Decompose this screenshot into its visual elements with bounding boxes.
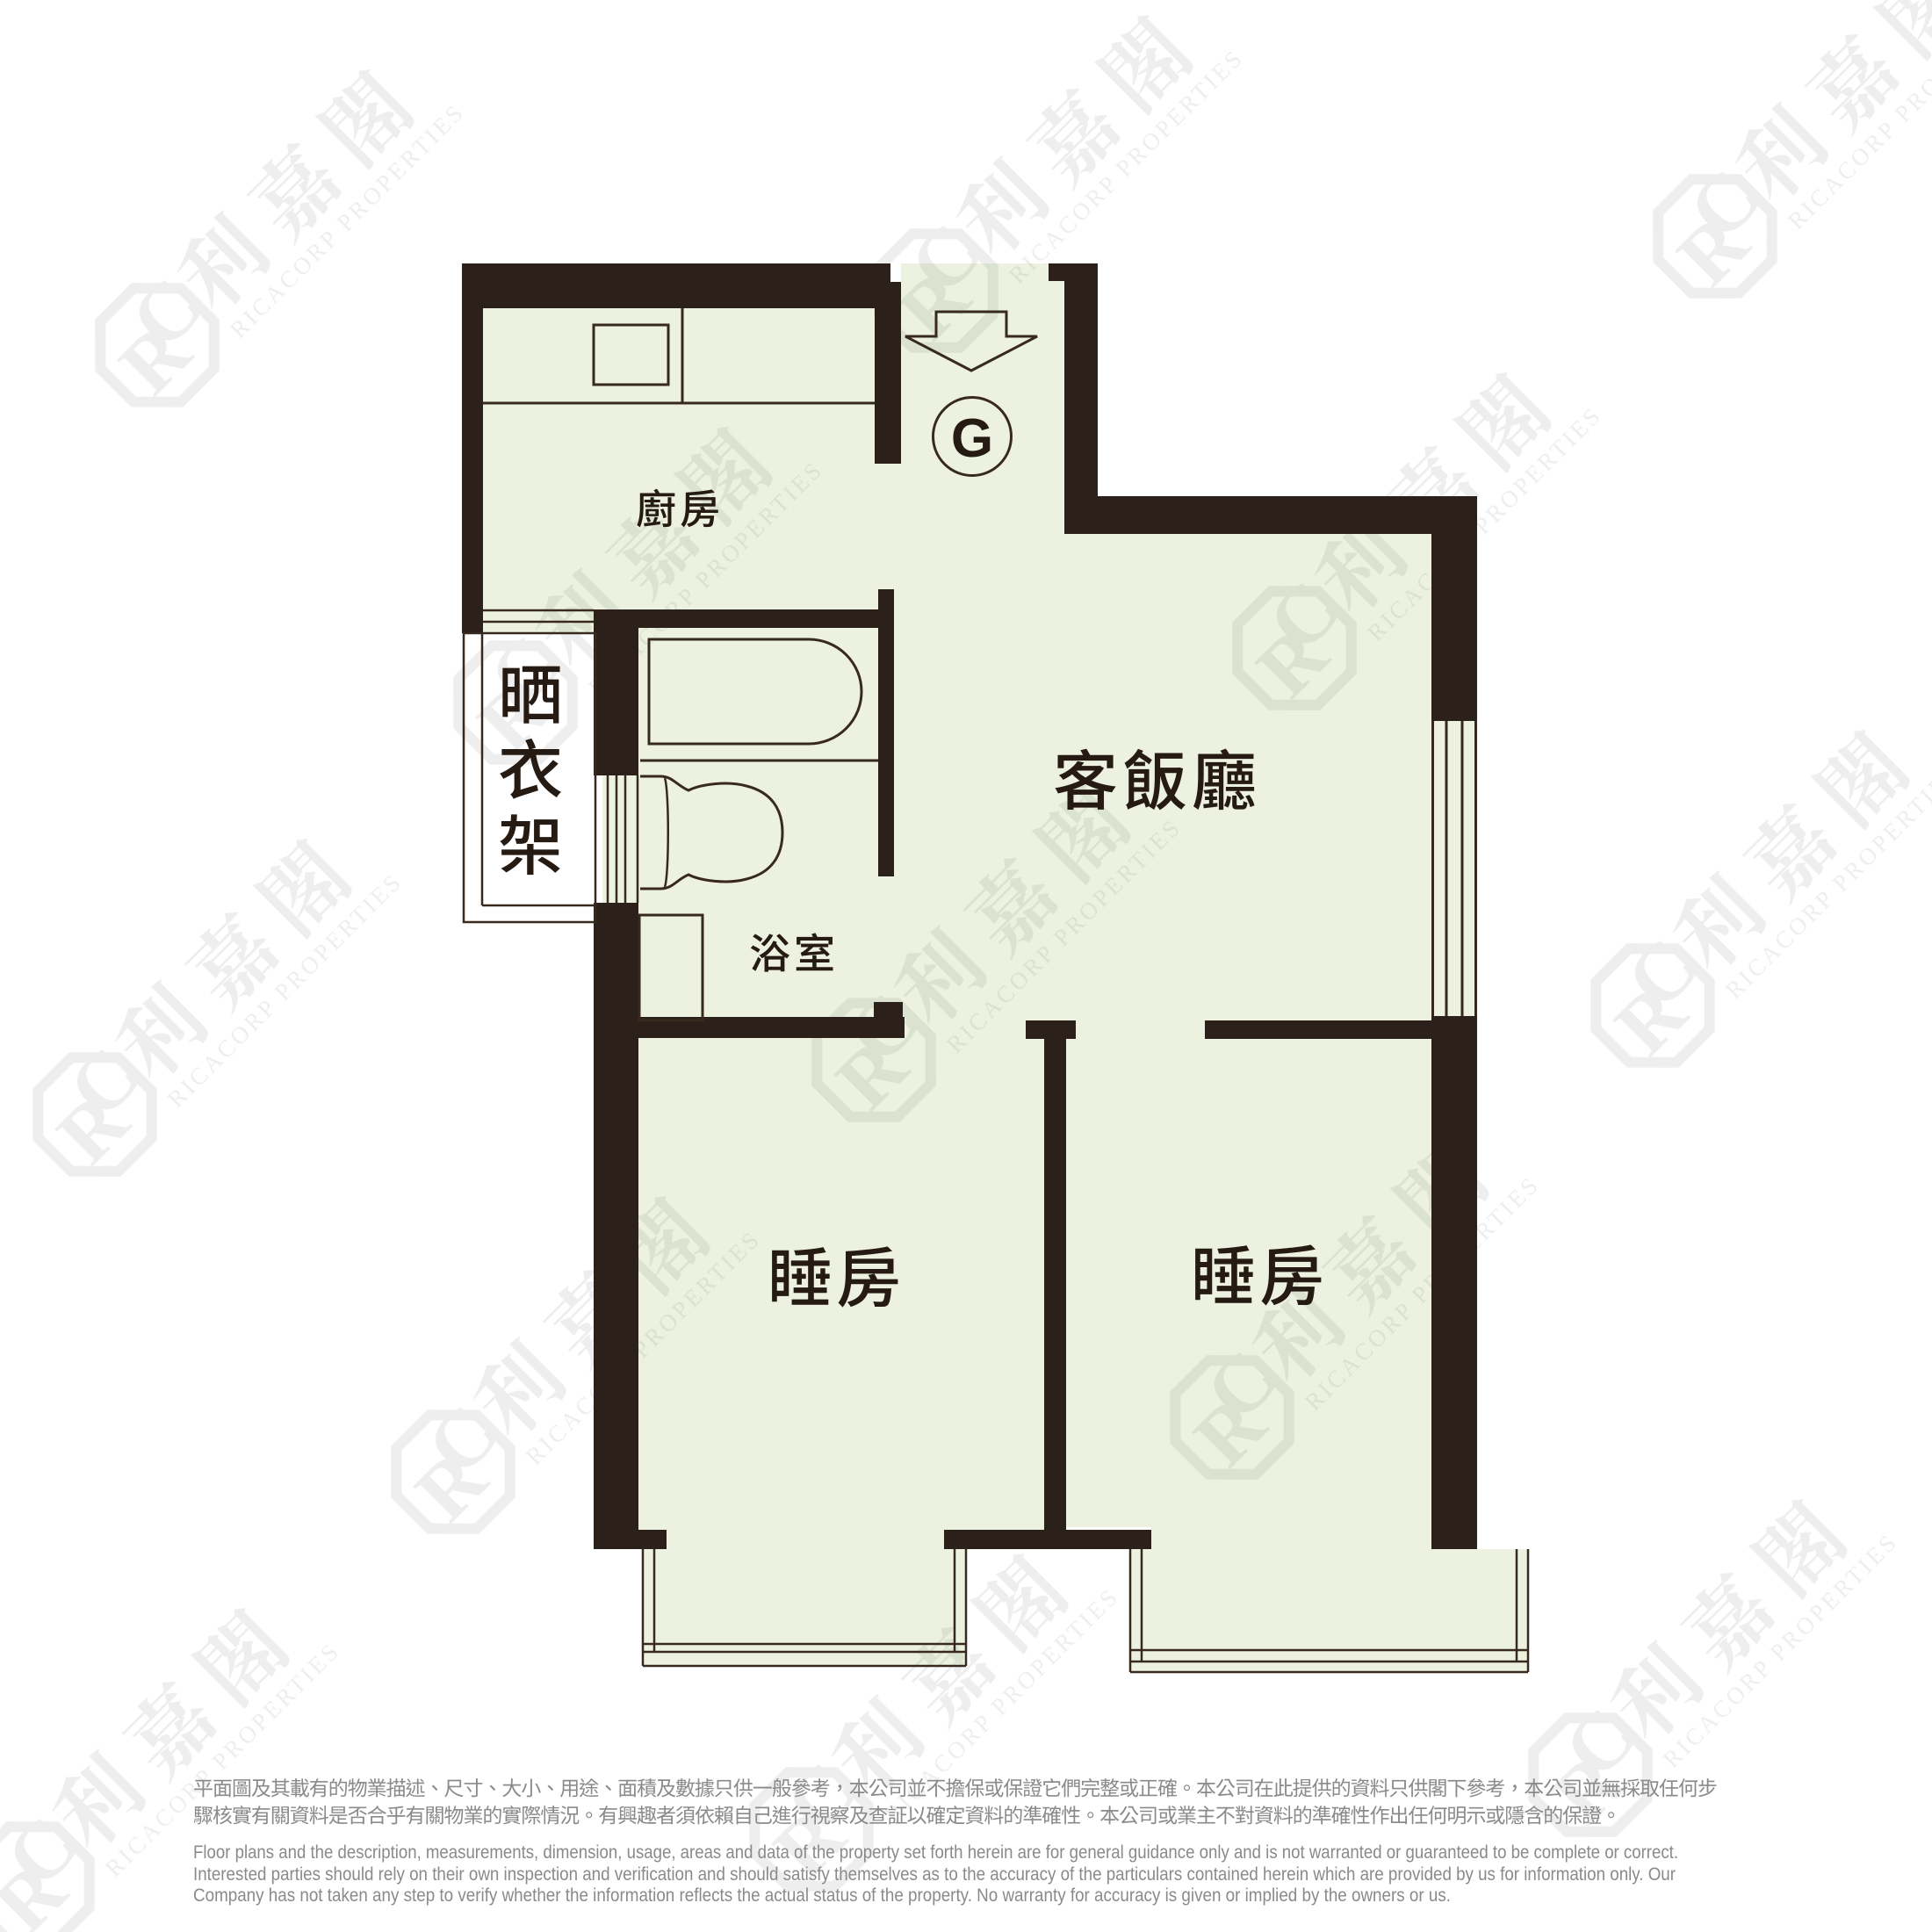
svg-text:Interested parties should rely: Interested parties should rely on their … bbox=[193, 1864, 1676, 1885]
svg-text:Floor plans and the descriptio: Floor plans and the description, measure… bbox=[193, 1842, 1678, 1863]
svg-text:G: G bbox=[951, 408, 993, 469]
svg-text:Company has not taken any step: Company has not taken any step to verify… bbox=[193, 1885, 1451, 1906]
